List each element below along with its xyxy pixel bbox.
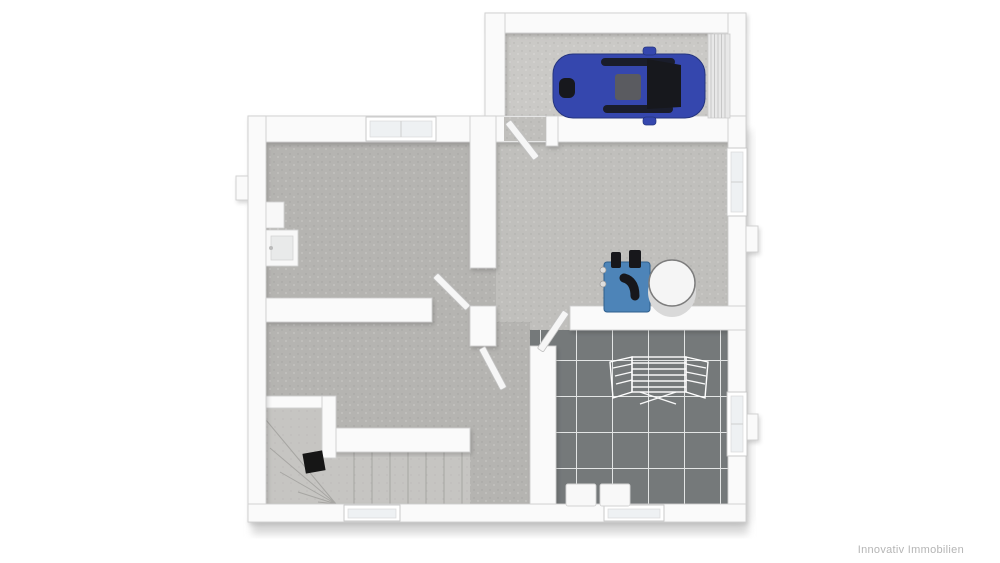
window-bottom-right xyxy=(604,505,664,521)
heater-valve-2 xyxy=(600,281,606,287)
car-mirror-bottom xyxy=(643,117,656,125)
left-wall-fin xyxy=(236,176,248,200)
wall-panel xyxy=(266,202,284,228)
window-top xyxy=(366,117,436,141)
garage-top-wall xyxy=(485,13,746,33)
garage-door xyxy=(708,34,730,118)
right-wall-fin-2 xyxy=(746,414,758,440)
window-right-utility xyxy=(727,148,747,216)
bottom-wall xyxy=(248,504,746,522)
watermark: Innovativ Immobilien xyxy=(858,544,964,556)
interior-wall-room-hall xyxy=(470,116,496,268)
car-mirror-top xyxy=(643,47,656,55)
interior-wall-stub xyxy=(470,306,496,346)
floorplan-render xyxy=(0,0,1000,563)
wash-basin xyxy=(266,230,298,266)
window-right-laundry xyxy=(727,392,747,456)
blue-car xyxy=(553,47,705,125)
heater-pipe-2 xyxy=(629,250,641,268)
window-bottom-left xyxy=(344,505,400,521)
car-windshield xyxy=(647,59,681,109)
interior-wall-stairhall-laundry xyxy=(530,346,556,504)
heater-valve-1 xyxy=(600,267,606,273)
right-wall-fin-1 xyxy=(746,226,758,252)
basin-faucet xyxy=(269,246,273,250)
floorplan-stage: Innovativ Immobilien xyxy=(0,0,1000,563)
dryer xyxy=(600,484,630,506)
stair-opening xyxy=(302,450,325,473)
laundry-tiled-floor xyxy=(530,330,728,504)
garage-right-wall xyxy=(728,13,746,116)
stair-flight-base xyxy=(336,452,470,504)
car-sunroof xyxy=(615,74,641,100)
top-wall xyxy=(248,116,746,142)
water-tank xyxy=(648,260,696,317)
left-wall xyxy=(248,116,266,522)
washing-machine xyxy=(566,484,596,506)
heater-pipe-1 xyxy=(611,252,621,268)
stair-side-wall xyxy=(330,428,470,452)
interior-wall-room-stairhall xyxy=(266,298,432,322)
door-jamb xyxy=(546,116,558,146)
car-rear-window xyxy=(559,78,575,98)
stair-corner-rail xyxy=(322,396,336,458)
